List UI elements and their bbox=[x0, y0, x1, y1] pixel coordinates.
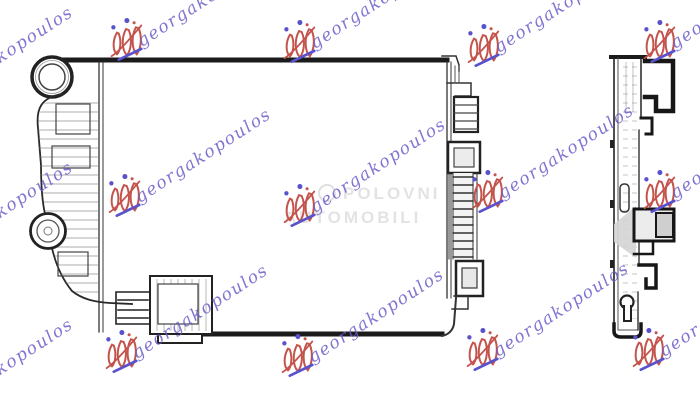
side-view bbox=[610, 57, 674, 337]
upper-bracket bbox=[454, 97, 478, 132]
inlet-flange bbox=[31, 214, 66, 249]
retainer-hook-lower bbox=[639, 265, 656, 288]
left-tank bbox=[31, 94, 133, 304]
mounting-bracket-mid bbox=[634, 209, 674, 254]
front-view bbox=[31, 56, 484, 343]
mounting-bracket-top bbox=[645, 61, 673, 111]
radiator-technical-drawing bbox=[0, 0, 700, 410]
retainer-hook-upper bbox=[641, 118, 652, 134]
radiator-drawing-image: POLOVNI AUTOMOBILI georgakopoulos georga… bbox=[0, 0, 700, 410]
drain-connector bbox=[116, 276, 212, 343]
filler-neck bbox=[32, 57, 72, 97]
tank-ladder-ribs bbox=[449, 173, 477, 259]
right-tank bbox=[447, 66, 483, 309]
